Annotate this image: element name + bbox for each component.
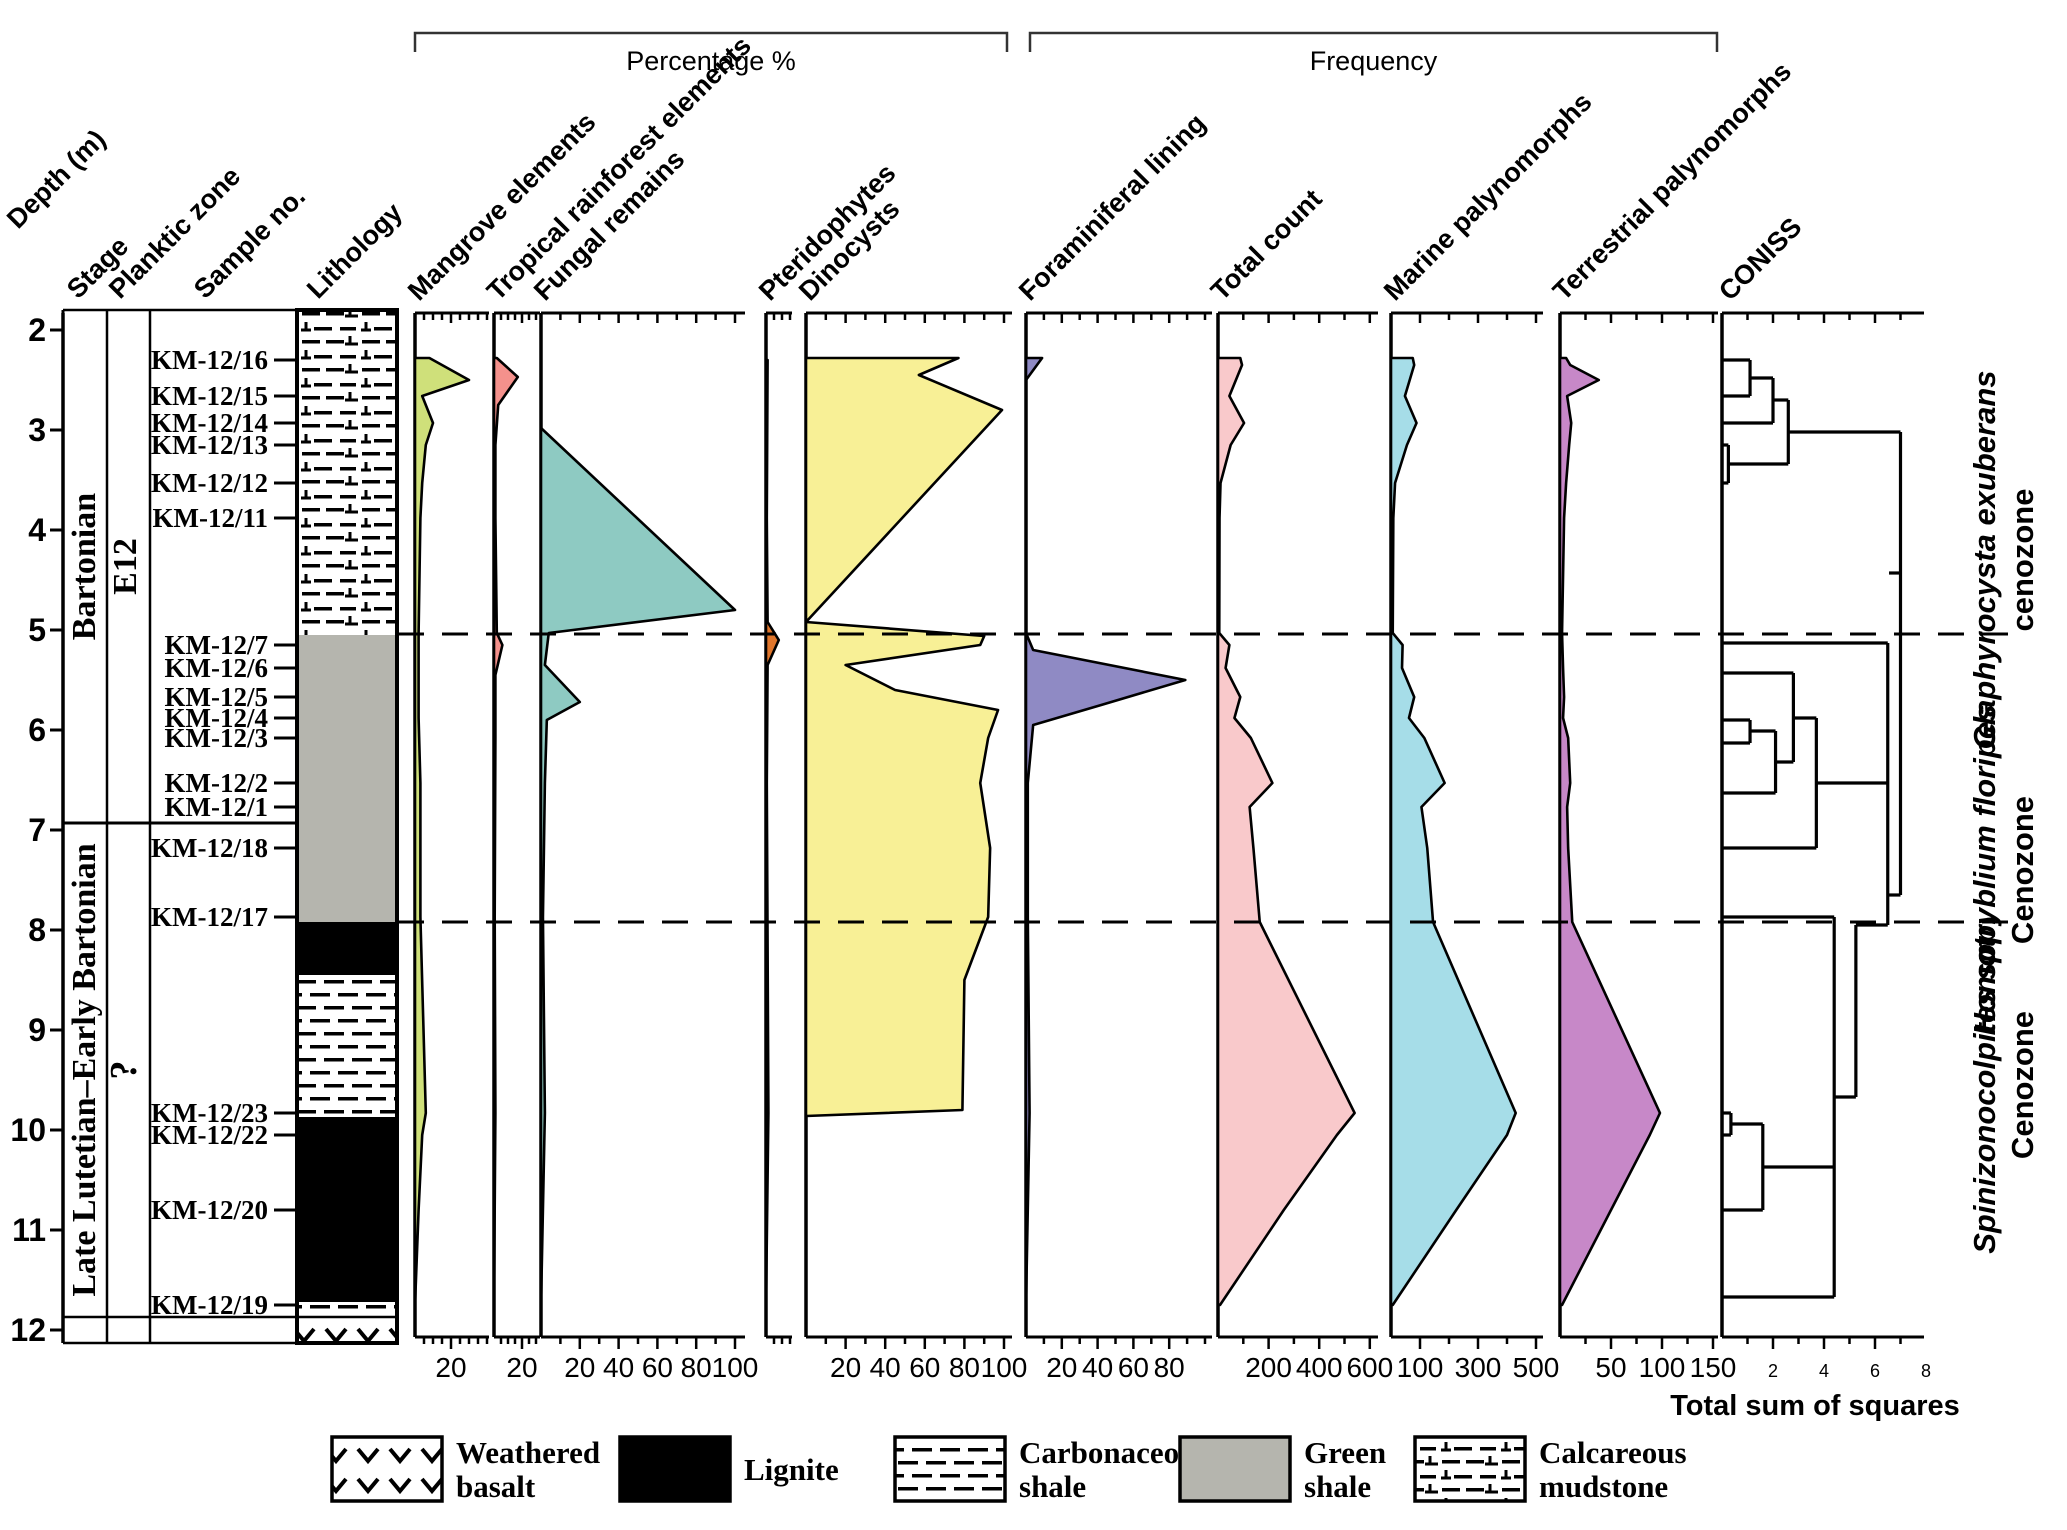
axis-tick-label: 80 [1154, 1352, 1185, 1383]
fungal-remains-curve [541, 428, 735, 1305]
group-brackets: Percentage %Frequency [415, 33, 1717, 76]
panel-coniss: 2468CONISSTotal sum of squares [1670, 212, 1960, 1422]
tropical-rainforest-elements-curve [494, 358, 518, 1305]
cenozone-sub-glaphyrocysta-exuberans: cenozone [2005, 489, 2040, 632]
axis-tick-label: 60 [909, 1352, 940, 1383]
coniss-axis-title: Total sum of squares [1670, 1390, 1960, 1422]
axis-tick-label: 50 [1595, 1352, 1626, 1383]
stratigraphic-palynology-figure: BartonianLate Lutetian–Early BartonianE1… [0, 0, 2067, 1530]
axis-tick-label: 20 [564, 1352, 595, 1383]
depth-tick-label: 11 [12, 1212, 46, 1248]
cenozone-labels: Glaphyrocysta exuberanscenozoneHomotrybl… [1967, 370, 2040, 1253]
mangrove-elements-curve [415, 358, 469, 1305]
marine-palynomorphs-curve [1391, 358, 1516, 1305]
axis-tick-label: 150 [1690, 1352, 1737, 1383]
legend-item-carbonaceous-shale: Carbonaceousshale [895, 1435, 1208, 1504]
panel-header-foraminiferal-lining: Foraminiferal lining [1013, 108, 1211, 306]
dashed-correlation-lines [398, 634, 2008, 922]
legend-swatch-lignite [620, 1437, 730, 1501]
depth-tick-label: 7 [28, 812, 46, 848]
sample-label: KM-12/16 [151, 345, 268, 375]
legend-label: Green [1304, 1435, 1386, 1470]
axis-tick-label: 400 [1296, 1352, 1343, 1383]
depth-tick-label: 12 [10, 1312, 46, 1348]
axis-tick-label: 100 [1397, 1352, 1444, 1383]
sample-label: KM-12/3 [165, 723, 268, 753]
axis-tick-label: 60 [1118, 1352, 1149, 1383]
axis-tick-label: 40 [1082, 1352, 1113, 1383]
lithology-unit-calcareous-mudstone [297, 310, 397, 635]
axis-tick-label: 6 [1870, 1361, 1880, 1381]
panel-header-coniss: CONISS [1713, 212, 1807, 306]
axis-tick-label: 20 [1046, 1352, 1077, 1383]
axis-tick-label: 20 [830, 1352, 861, 1383]
lithology-unit-carbonaceous-shale [297, 975, 397, 1117]
legend-label: Lignite [744, 1452, 839, 1487]
legend-item-calcareous-mudstone: Calcareousmudstone [1415, 1435, 1687, 1504]
sample-label: KM-12/20 [151, 1195, 268, 1225]
depth-header: Depth (m) [1, 124, 111, 234]
axis-tick-label: 60 [642, 1352, 673, 1383]
sample-label: KM-12/12 [151, 468, 268, 498]
stage-label-bartonian: Bartonian [66, 493, 103, 640]
depth-tick-label: 5 [28, 612, 46, 648]
left-columns: BartonianLate Lutetian–Early BartonianE1… [63, 310, 397, 1343]
depth-tick-label: 6 [28, 712, 46, 748]
sample-label: KM-12/13 [151, 430, 268, 460]
panel-foraminiferal-lining: 20406080Foraminiferal lining [1013, 108, 1212, 1383]
lithology-legend: WeatheredbasaltLigniteCarbonaceousshaleG… [332, 1435, 1687, 1504]
sample-label: KM-12/17 [151, 902, 268, 932]
axis-tick-label: 300 [1455, 1352, 1502, 1383]
axis-tick-label: 40 [870, 1352, 901, 1383]
axis-tick-label: 500 [1513, 1352, 1560, 1383]
figure-canvas: BartonianLate Lutetian–Early BartonianE1… [0, 0, 2067, 1530]
terrestrial-palynomorphs-curve [1560, 358, 1660, 1305]
legend-item-lignite: Lignite [620, 1437, 839, 1501]
axis-tick-label: 100 [712, 1352, 759, 1383]
sample-label: KM-12/6 [165, 653, 268, 683]
lithology-unit-carbonaceous-shale [297, 1302, 397, 1317]
total-count-curve [1218, 358, 1355, 1305]
axis-tick-label: 200 [1245, 1352, 1292, 1383]
legend-swatch-calcareous-mudstone [1415, 1437, 1525, 1501]
axis-tick-label: 2 [1768, 1361, 1778, 1381]
legend-swatch-weathered-basalt [332, 1437, 442, 1501]
lithology-header: Lithology [301, 197, 408, 304]
axis-tick-label: 100 [1639, 1352, 1686, 1383]
lithology-unit-lignite [297, 922, 397, 975]
pteridophytes-curve [766, 360, 779, 1305]
bracket-label-frequency: Frequency [1310, 46, 1438, 76]
axis-tick-label: 100 [981, 1352, 1028, 1383]
legend-label: Calcareous [1539, 1435, 1687, 1470]
cenozone-sub-spinizonocolpites-spp: Cenozone [2005, 1011, 2040, 1159]
panel-dinocysts: 20406080100Dinocysts [793, 194, 1027, 1383]
planktic-zone-label-query: ? [103, 1061, 145, 1080]
stage-label-late-lutetian: Late Lutetian–Early Bartonian [66, 843, 103, 1296]
legend-label: basalt [456, 1469, 536, 1504]
depth-tick-label: 2 [28, 312, 46, 348]
sample-label: KM-12/18 [151, 833, 268, 863]
legend-item-weathered-basalt: Weatheredbasalt [332, 1435, 600, 1504]
depth-tick-label: 3 [28, 412, 46, 448]
axis-tick-label: 20 [435, 1352, 466, 1383]
lithology-unit-green-shale [297, 635, 397, 922]
depth-tick-label: 10 [10, 1112, 46, 1148]
legend-label: mudstone [1539, 1469, 1668, 1504]
axis-tick-label: 80 [681, 1352, 712, 1383]
legend-label: shale [1304, 1469, 1371, 1504]
panel-fungal-remains: 20406080100Fungal remains [528, 144, 758, 1383]
depth-axis: 23456789101112 [10, 312, 64, 1348]
legend-label: shale [1019, 1469, 1086, 1504]
legend-item-green-shale: Greenshale [1180, 1435, 1386, 1504]
lithology-unit-weathered-basalt [297, 1317, 397, 1343]
sample-column: KM-12/16KM-12/15KM-12/14KM-12/13KM-12/12… [151, 345, 297, 1320]
cenozone-glaphyrocysta-exuberans: Glaphyrocysta exuberans [1967, 370, 2002, 749]
axis-tick-label: 4 [1819, 1361, 1829, 1381]
sample-label: KM-12/22 [151, 1120, 268, 1150]
axis-tick-label: 80 [949, 1352, 980, 1383]
legend-swatch-carbonaceous-shale [895, 1437, 1005, 1501]
planktic-zone-label-e12: E12 [107, 538, 144, 595]
depth-tick-label: 9 [28, 1012, 46, 1048]
panel-header-total-count: Total count [1205, 184, 1328, 307]
depth-tick-label: 4 [28, 512, 46, 548]
dinocysts-curve [806, 358, 1002, 1116]
axis-tick-label: 40 [603, 1352, 634, 1383]
foraminiferal-lining-curve [1026, 358, 1185, 1305]
legend-swatch-green-shale [1180, 1437, 1290, 1501]
depth-tick-label: 8 [28, 912, 46, 948]
lithology-unit-lignite [297, 1117, 397, 1302]
cenozone-sub-homotryblium-floripes: Cenozone [2005, 796, 2040, 944]
sample-label: KM-12/19 [151, 1290, 268, 1320]
column-headers: Depth (m)StagePlanktic zoneSample no.Lit… [1, 124, 408, 304]
axis-tick-label: 20 [506, 1352, 537, 1383]
panel-total-count: 200400600Total count [1205, 184, 1393, 1383]
cenozone-spinizonocolpites-spp: Spinizonocolpites spp. [1967, 916, 2002, 1254]
lithology-column [297, 310, 397, 1343]
sample-label: KM-12/11 [153, 503, 269, 533]
sample-label: KM-12/15 [151, 381, 268, 411]
sample-label: KM-12/1 [165, 792, 268, 822]
legend-label: Weathered [456, 1435, 600, 1470]
axis-tick-label: 600 [1346, 1352, 1393, 1383]
axis-tick-label: 8 [1921, 1361, 1931, 1381]
